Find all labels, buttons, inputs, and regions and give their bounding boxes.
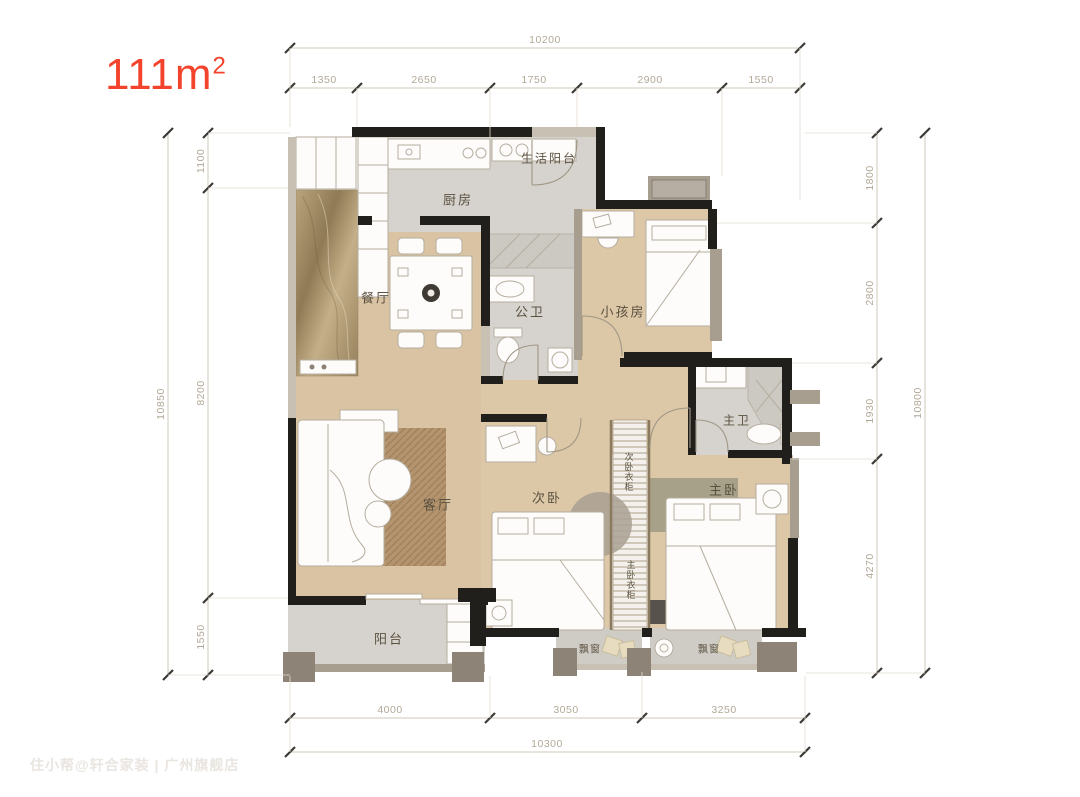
dim-right-seg-1: 1800 [864,165,876,190]
label-utility-balcony: 生活阳台 [521,150,577,167]
guest-vanity [486,276,534,302]
area-value: 111m [105,50,213,99]
dim-right-seg-4: 4270 [864,553,876,578]
label-second-wardrobe: 次卧衣柜 [623,452,636,492]
area-sup: 2 [213,52,227,79]
dim-left-seg-3: 1550 [195,624,207,649]
dining-chair [398,332,424,348]
window-top [532,127,596,137]
coffee-table [369,459,411,501]
media-console [300,360,356,374]
pier [452,652,484,682]
dim-left-total: 10850 [155,388,167,420]
left-wall-upper [288,137,296,418]
label-bay-window-right: 飘窗 [698,641,720,656]
right-stub [790,390,820,404]
slider-pane [366,594,422,599]
dim-top-seg-3: 1750 [521,74,546,86]
desk [486,426,536,462]
master-bed [666,498,776,630]
dining-chair [398,238,424,254]
label-master-bath: 主卫 [723,412,751,429]
label-balcony: 阳台 [374,629,404,648]
nightstand [486,600,512,626]
dim-right-total: 10800 [912,387,924,419]
label-bay-window-left: 飘窗 [579,641,601,656]
toilet-tank [494,328,522,337]
dim-top-seg-2: 2650 [411,74,436,86]
dim-top-total: 10200 [529,34,561,46]
label-kitchen: 厨房 [443,190,473,209]
master-toilet [747,424,781,444]
pantry-cabinet [296,137,356,189]
label-guest-bath: 公卫 [515,302,545,321]
watermark: 住小帮@轩合家装 | 广州旗舰店 [30,755,239,775]
label-living: 客厅 [423,495,453,514]
pier [283,652,315,682]
dim-right-seg-2: 2800 [864,280,876,305]
kitchen-counter [388,139,490,169]
master-nightstand [756,484,788,514]
label-second-bedroom: 次卧 [532,488,562,507]
pier [757,642,797,672]
floorplan-image: 111m2 厨房 生活阳台 餐厅 公卫 小孩房 主卫 客厅 次卧 主卧 阳台 飘… [0,0,1080,797]
dining-chair [436,238,462,254]
label-kids-room: 小孩房 [600,302,645,321]
dining-chair [436,332,462,348]
dim-top-seg-4: 2900 [637,74,662,86]
kids-right-pier [710,249,722,341]
plant-pot [655,639,673,657]
sofa [298,420,384,566]
bath-kids-divider [574,209,582,360]
dim-top-seg-5: 1550 [748,74,773,86]
kids-desk [582,211,634,237]
pier [553,648,577,676]
cushion [732,640,750,658]
kids-bed [646,220,712,326]
coffee-table-small [365,501,391,527]
label-master-bedroom: 主卧 [709,480,739,499]
dim-bottom-seg-1: 4000 [377,704,402,716]
dim-right-seg-3: 1930 [864,398,876,423]
label-master-wardrobe: 主卧衣柜 [625,560,638,600]
right-stub [790,432,820,446]
dim-top-seg-1: 1350 [311,74,336,86]
area-title: 111m2 [105,50,227,100]
dim-left-seg-2: 8200 [195,380,207,405]
label-dining: 餐厅 [361,288,391,307]
marble-feature-wall [296,190,358,376]
dim-left-seg-1: 1100 [195,149,207,174]
dim-bottom-seg-3: 3250 [711,704,736,716]
dim-bottom-seg-2: 3050 [553,704,578,716]
pier [627,648,651,676]
dim-bottom-total: 10300 [531,738,563,750]
